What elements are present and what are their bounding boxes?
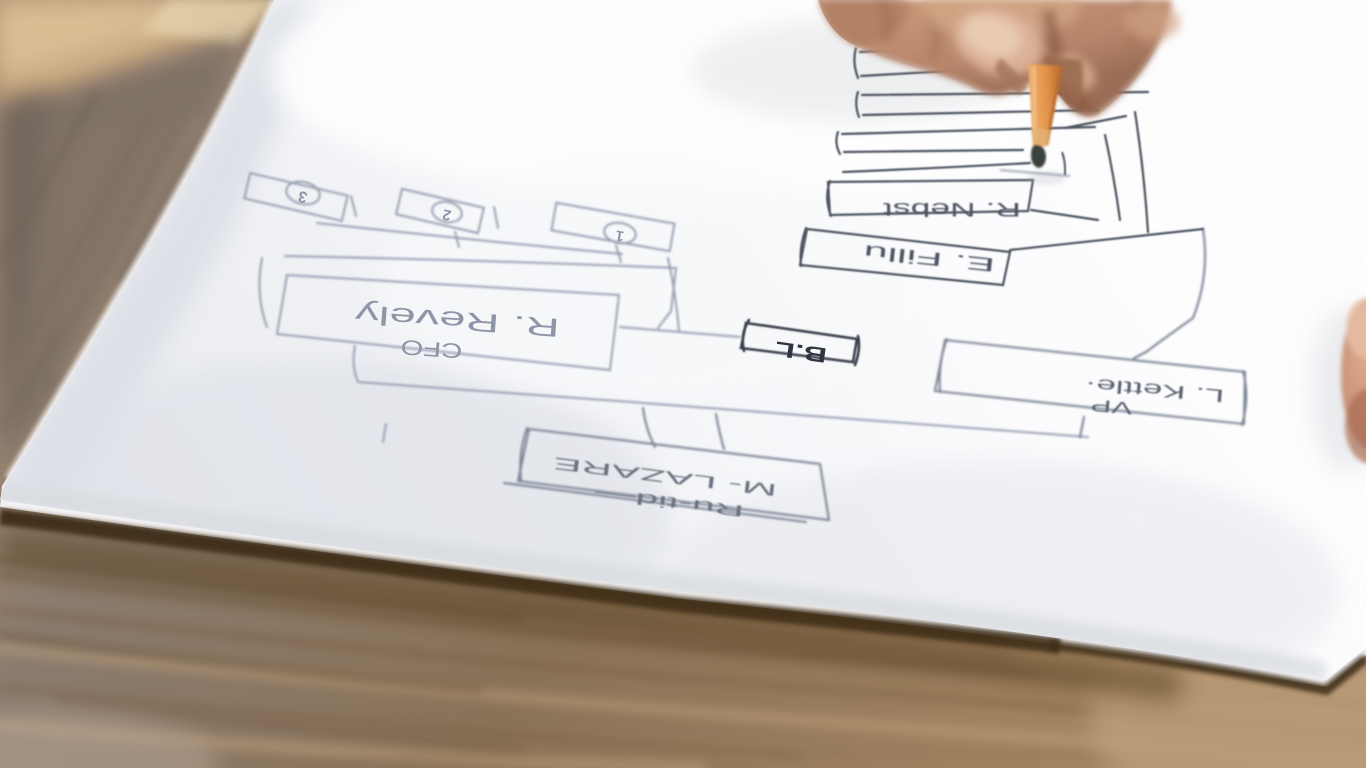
svg-text:VP: VP — [1090, 395, 1133, 418]
svg-text:CFO: CFO — [400, 335, 463, 362]
svg-text:R. Nebst: R. Nebst — [882, 198, 1021, 219]
